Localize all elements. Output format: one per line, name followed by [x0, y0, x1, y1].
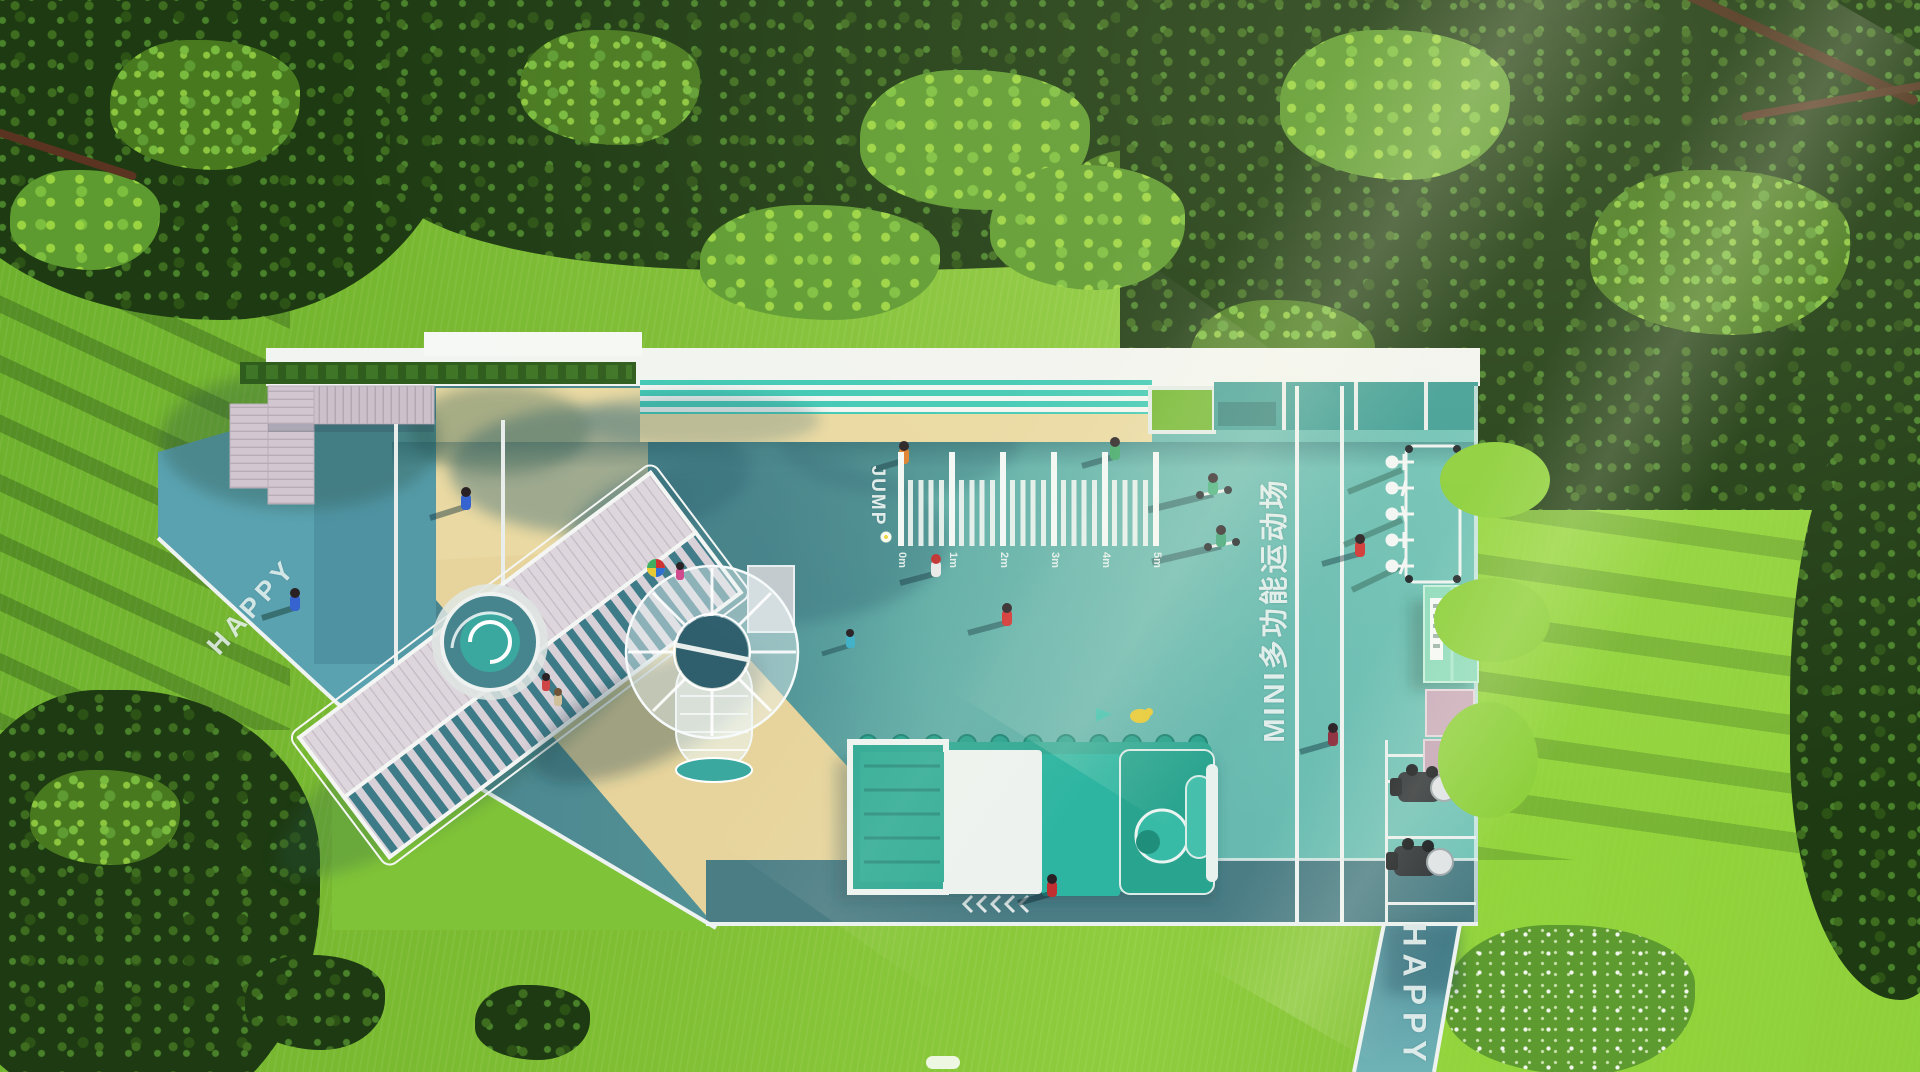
aerial-render-canvas: HAPPY JUMP 0m 1m 2m 3m 4m 5m MINI多功能运动场 …: [0, 0, 1920, 1072]
bottom-center-pill: [926, 1056, 960, 1069]
child: [676, 562, 684, 580]
jump-label: JUMP: [866, 466, 888, 527]
pinwheel-toy: [647, 559, 665, 577]
child: [542, 673, 550, 691]
daisy-icon: [880, 531, 892, 543]
child: [554, 688, 562, 706]
